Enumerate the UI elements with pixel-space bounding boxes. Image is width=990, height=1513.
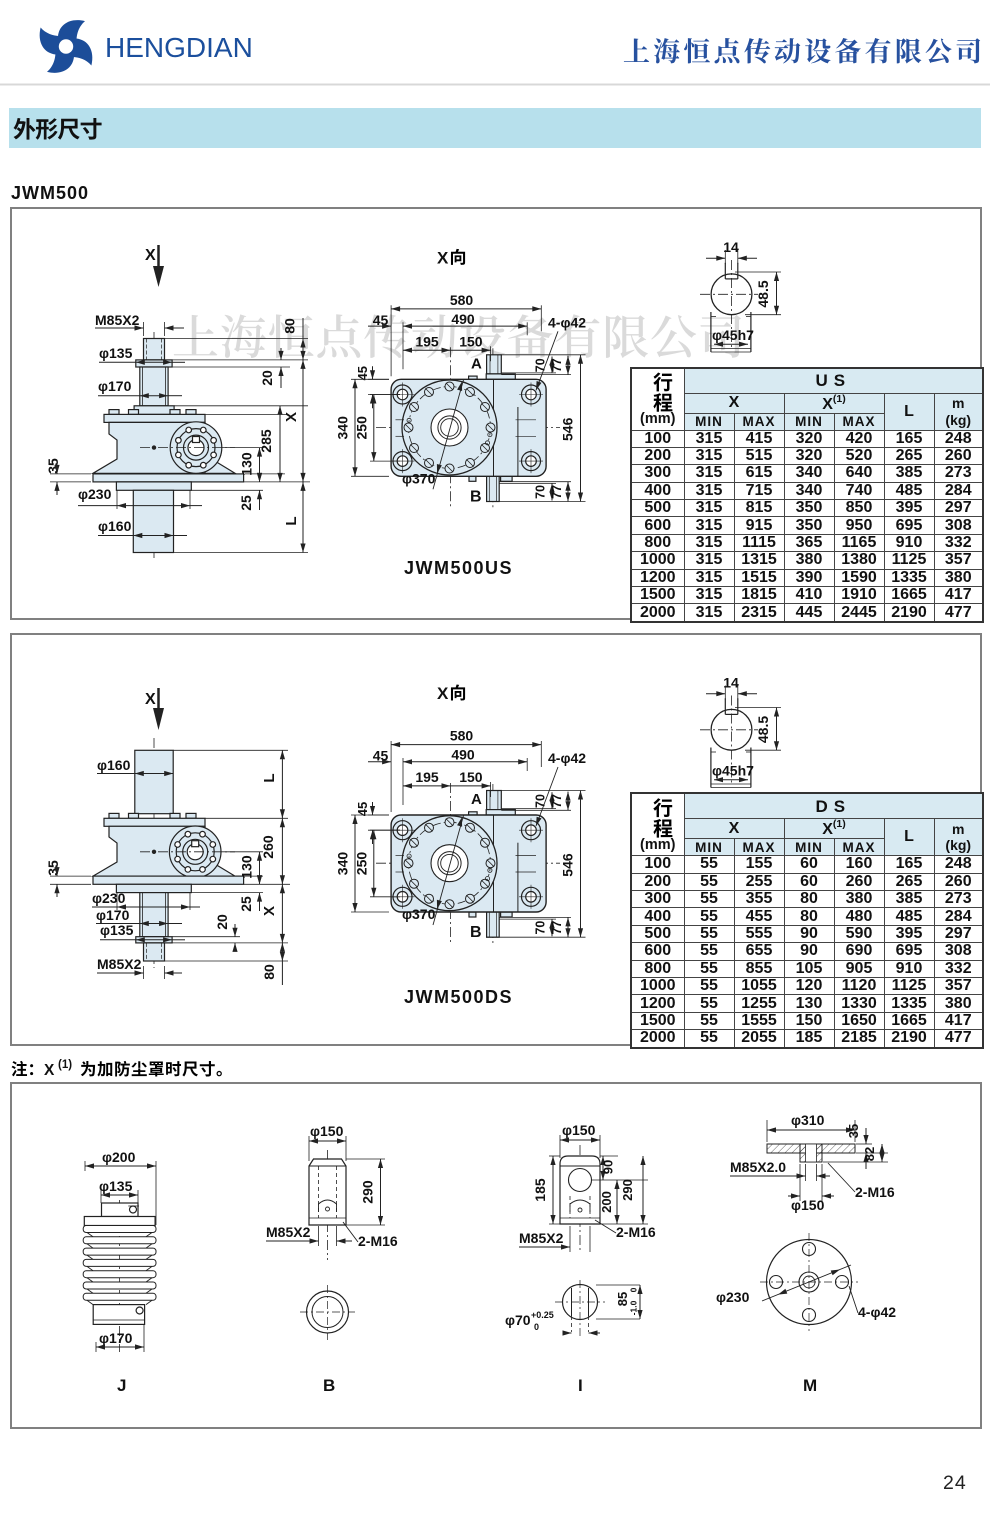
svg-text:(1): (1) [58,1059,72,1071]
svg-text:JWM500: JWM500 [11,183,89,203]
svg-text:24: 24 [943,1472,967,1494]
svg-text:HENGDIAN: HENGDIAN [105,32,253,63]
svg-text:X: X [44,1062,55,1079]
